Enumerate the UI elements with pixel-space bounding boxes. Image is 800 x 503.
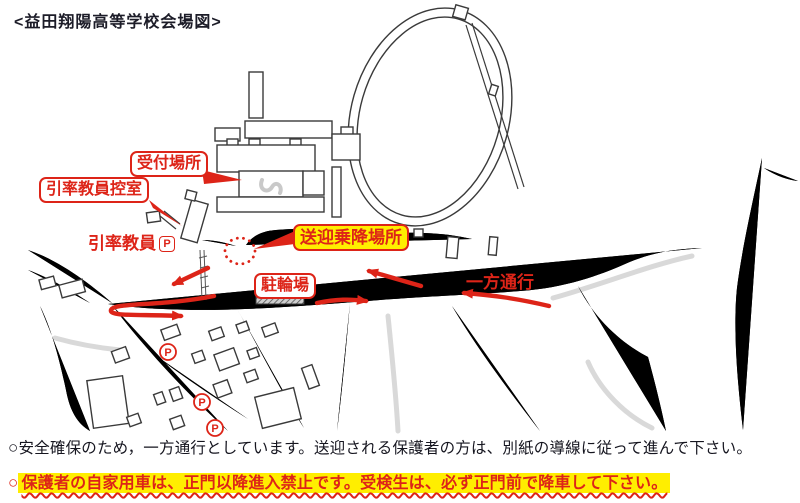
note-bullet: ○ (8, 473, 18, 492)
running-track (323, 0, 537, 245)
parking-box-icon: P (159, 236, 175, 252)
note-one-way: ○安全確保のため，一方通行としています。送迎される保護者の方は、別紙の導線に従っ… (8, 436, 752, 458)
svg-text:P: P (198, 397, 205, 409)
note-one-way-text: 安全確保のため，一方通行としています。送迎される保護者の方は、別紙の導線に従って… (18, 440, 752, 457)
label-dropoff-area: 送迎乗降場所 (293, 224, 409, 251)
svg-text:P: P (211, 423, 218, 435)
page-title: <益田翔陽高等学校会場図> (14, 8, 222, 32)
label-one-way: 一方通行 (466, 273, 534, 293)
label-bicycle-parking: 駐輪場 (254, 273, 316, 299)
label-one-way-text: 一方通行 (466, 273, 534, 293)
gate-fence (199, 250, 209, 300)
dropoff-dotted-circle (225, 238, 255, 264)
label-teacher-waiting-room: 引率教員控室 (39, 177, 149, 203)
svg-text:P: P (164, 347, 171, 359)
label-teacher-parking-text: 引率教員 (88, 234, 156, 254)
parking-marker-icon: P (207, 420, 223, 436)
note-bullet: ○ (8, 438, 18, 457)
parking-marker-icon: P (160, 344, 176, 360)
label-teacher-parking: 引率教員 P (88, 234, 175, 254)
note-no-entry-text: 保護者の自家用車は、正門以降進入禁止です。受検生は、必ず正門前で降車して下さい。 (18, 473, 670, 493)
note-no-entry: ○保護者の自家用車は、正門以降進入禁止です。受検生は、必ず正門前で降車して下さい… (8, 469, 670, 493)
venue-map-page: P P P <益田翔陽高等学校会場図> 受付場所 引率教員控室 引率教員 P 送… (0, 0, 800, 503)
label-reception-place: 受付場所 (130, 151, 208, 177)
parking-marker-icon: P (194, 394, 210, 410)
